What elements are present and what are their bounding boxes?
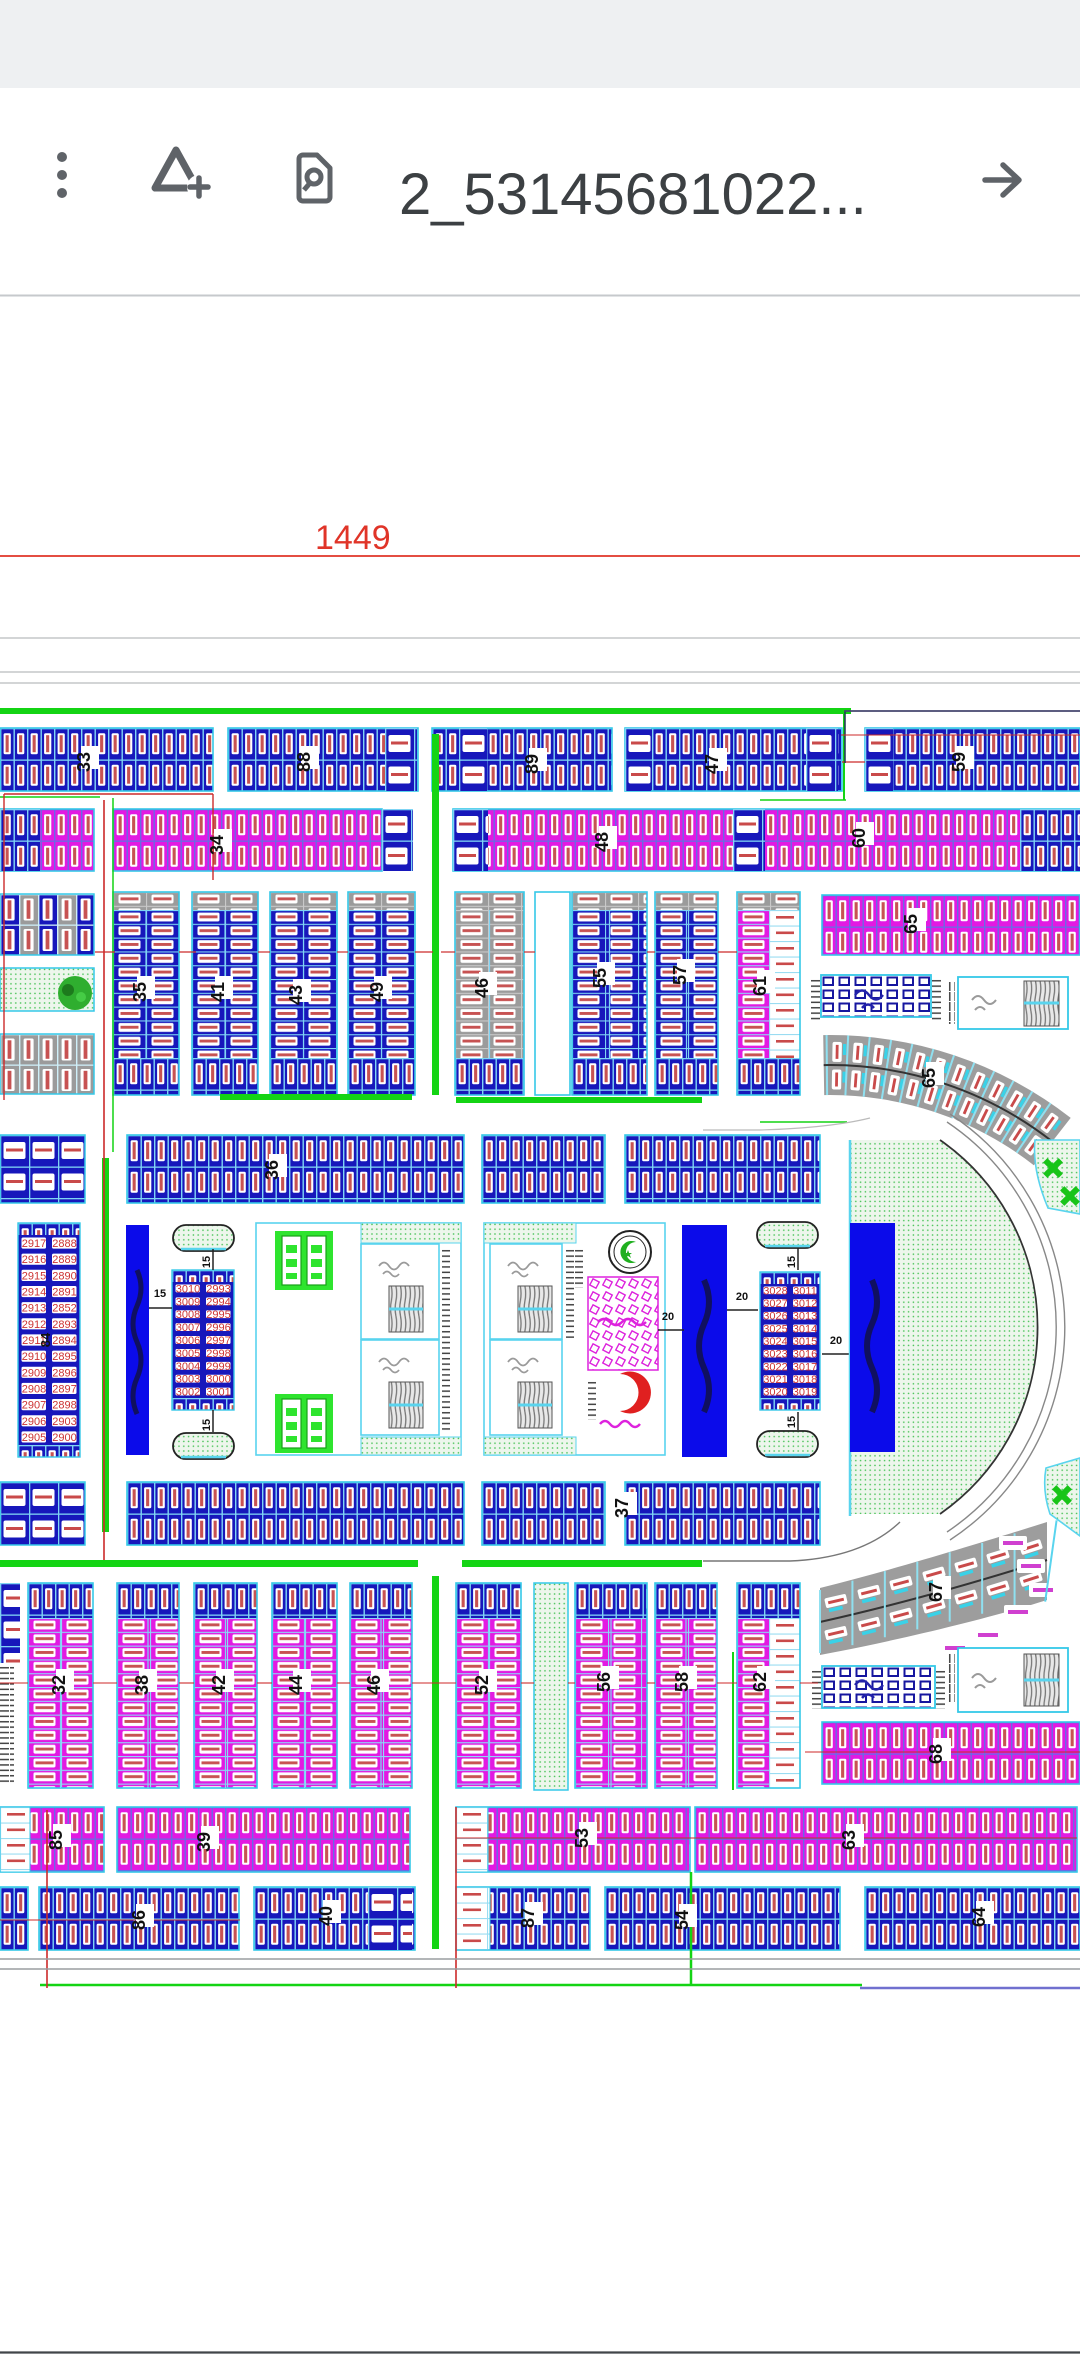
svg-text:3014: 3014 bbox=[793, 1323, 817, 1335]
svg-text:2912: 2912 bbox=[22, 1319, 46, 1331]
svg-text:3003: 3003 bbox=[176, 1374, 200, 1386]
svg-text:2908: 2908 bbox=[22, 1383, 46, 1395]
svg-text:34: 34 bbox=[207, 835, 227, 855]
svg-text:2898: 2898 bbox=[52, 1400, 76, 1412]
svg-text:48: 48 bbox=[592, 832, 612, 852]
svg-text:2998: 2998 bbox=[206, 1348, 230, 1360]
svg-text:33: 33 bbox=[74, 752, 94, 772]
svg-text:65: 65 bbox=[901, 914, 921, 934]
svg-text:1449: 1449 bbox=[315, 519, 391, 557]
svg-text:57: 57 bbox=[670, 965, 690, 985]
svg-text:2888: 2888 bbox=[52, 1238, 76, 1250]
svg-text:2891: 2891 bbox=[52, 1287, 76, 1299]
svg-text:2900: 2900 bbox=[52, 1432, 76, 1444]
svg-text:2913: 2913 bbox=[22, 1303, 46, 1315]
svg-text:15: 15 bbox=[786, 1416, 798, 1428]
svg-text:86: 86 bbox=[129, 1910, 149, 1930]
svg-text:85: 85 bbox=[46, 1830, 66, 1850]
svg-text:2907: 2907 bbox=[22, 1400, 46, 1412]
svg-text:59: 59 bbox=[949, 752, 969, 772]
svg-text:2993: 2993 bbox=[206, 1283, 230, 1295]
svg-text:2_53145681022...: 2_53145681022... bbox=[399, 162, 867, 227]
svg-text:55: 55 bbox=[590, 968, 610, 988]
svg-text:58: 58 bbox=[672, 1672, 692, 1692]
svg-text:68: 68 bbox=[926, 1744, 946, 1764]
svg-text:3017: 3017 bbox=[793, 1361, 817, 1373]
svg-text:89: 89 bbox=[522, 754, 542, 774]
svg-text:2896: 2896 bbox=[52, 1367, 76, 1379]
svg-text:37: 37 bbox=[612, 1498, 632, 1518]
svg-text:2996: 2996 bbox=[206, 1322, 230, 1334]
svg-text:2906: 2906 bbox=[22, 1416, 46, 1428]
svg-text:3026: 3026 bbox=[763, 1311, 787, 1323]
svg-text:3016: 3016 bbox=[793, 1349, 817, 1361]
svg-text:2909: 2909 bbox=[22, 1367, 46, 1379]
svg-text:46: 46 bbox=[472, 978, 492, 998]
svg-text:3002: 3002 bbox=[176, 1387, 200, 1399]
svg-text:3028: 3028 bbox=[763, 1285, 787, 1297]
svg-text:3015: 3015 bbox=[793, 1336, 817, 1348]
svg-text:2903: 2903 bbox=[52, 1416, 76, 1428]
svg-text:3004: 3004 bbox=[176, 1361, 200, 1373]
svg-text:60: 60 bbox=[849, 828, 869, 848]
svg-text:2994: 2994 bbox=[206, 1296, 230, 1308]
svg-text:2915: 2915 bbox=[22, 1270, 46, 1282]
svg-text:3027: 3027 bbox=[763, 1298, 787, 1310]
svg-text:44: 44 bbox=[286, 1675, 306, 1695]
svg-text:3021: 3021 bbox=[763, 1374, 787, 1386]
svg-text:65: 65 bbox=[919, 1068, 939, 1088]
svg-text:3023: 3023 bbox=[763, 1349, 787, 1361]
svg-text:41: 41 bbox=[208, 982, 228, 1002]
svg-text:39: 39 bbox=[194, 1832, 214, 1852]
svg-text:2895: 2895 bbox=[52, 1351, 76, 1363]
svg-text:3013: 3013 bbox=[793, 1311, 817, 1323]
svg-text:64: 64 bbox=[969, 1907, 989, 1927]
svg-text:63: 63 bbox=[839, 1830, 859, 1850]
svg-text:3009: 3009 bbox=[176, 1296, 200, 1308]
svg-text:15: 15 bbox=[786, 1256, 798, 1268]
svg-text:2999: 2999 bbox=[206, 1361, 230, 1373]
svg-text:2897: 2897 bbox=[52, 1383, 76, 1395]
svg-text:20: 20 bbox=[662, 1311, 674, 1323]
svg-text:61: 61 bbox=[750, 976, 770, 996]
svg-text:47: 47 bbox=[702, 754, 722, 774]
svg-text:3019: 3019 bbox=[793, 1387, 817, 1399]
svg-text:32: 32 bbox=[49, 1675, 69, 1695]
svg-text:2889: 2889 bbox=[52, 1254, 76, 1266]
svg-text:3005: 3005 bbox=[176, 1348, 200, 1360]
svg-text:15: 15 bbox=[201, 1419, 213, 1431]
svg-text:43: 43 bbox=[286, 985, 306, 1005]
svg-text:49: 49 bbox=[367, 982, 387, 1002]
svg-text:3020: 3020 bbox=[763, 1387, 787, 1399]
svg-text:15: 15 bbox=[201, 1256, 213, 1268]
svg-text:3007: 3007 bbox=[176, 1322, 200, 1334]
svg-text:3022: 3022 bbox=[763, 1361, 787, 1373]
svg-text:46: 46 bbox=[364, 1675, 384, 1695]
svg-text:62: 62 bbox=[750, 1672, 770, 1692]
svg-text:3001: 3001 bbox=[206, 1387, 230, 1399]
svg-text:84: 84 bbox=[38, 1332, 53, 1347]
svg-text:2914: 2914 bbox=[22, 1287, 46, 1299]
svg-text:88: 88 bbox=[294, 752, 314, 772]
svg-text:36: 36 bbox=[262, 1160, 282, 1180]
svg-text:2893: 2893 bbox=[52, 1319, 76, 1331]
svg-text:54: 54 bbox=[672, 1910, 692, 1930]
svg-text:3010: 3010 bbox=[176, 1283, 200, 1295]
svg-text:15: 15 bbox=[154, 1288, 166, 1300]
svg-text:2890: 2890 bbox=[52, 1270, 76, 1282]
svg-text:40: 40 bbox=[316, 1906, 336, 1926]
svg-text:2917: 2917 bbox=[22, 1238, 46, 1250]
svg-text:20: 20 bbox=[736, 1291, 748, 1303]
svg-text:2916: 2916 bbox=[22, 1254, 46, 1266]
svg-text:2910: 2910 bbox=[22, 1351, 46, 1363]
svg-text:3000: 3000 bbox=[206, 1374, 230, 1386]
svg-text:87: 87 bbox=[518, 1908, 538, 1928]
svg-text:52: 52 bbox=[472, 1675, 492, 1695]
svg-text:3008: 3008 bbox=[176, 1309, 200, 1321]
svg-text:2852: 2852 bbox=[52, 1303, 76, 1315]
svg-text:3024: 3024 bbox=[763, 1336, 787, 1348]
svg-text:2997: 2997 bbox=[206, 1335, 230, 1347]
svg-text:3012: 3012 bbox=[793, 1298, 817, 1310]
svg-text:42: 42 bbox=[209, 1675, 229, 1695]
svg-text:20: 20 bbox=[830, 1335, 842, 1347]
svg-text:53: 53 bbox=[572, 1828, 592, 1848]
svg-text:35: 35 bbox=[130, 982, 150, 1002]
svg-text:2995: 2995 bbox=[206, 1309, 230, 1321]
svg-text:2905: 2905 bbox=[22, 1432, 46, 1444]
svg-text:3011: 3011 bbox=[793, 1285, 817, 1297]
svg-text:67: 67 bbox=[926, 1582, 946, 1602]
svg-text:38: 38 bbox=[132, 1675, 152, 1695]
svg-text:3018: 3018 bbox=[793, 1374, 817, 1386]
svg-text:3025: 3025 bbox=[763, 1323, 787, 1335]
svg-text:2894: 2894 bbox=[52, 1335, 76, 1347]
svg-text:3006: 3006 bbox=[176, 1335, 200, 1347]
svg-text:56: 56 bbox=[594, 1672, 614, 1692]
